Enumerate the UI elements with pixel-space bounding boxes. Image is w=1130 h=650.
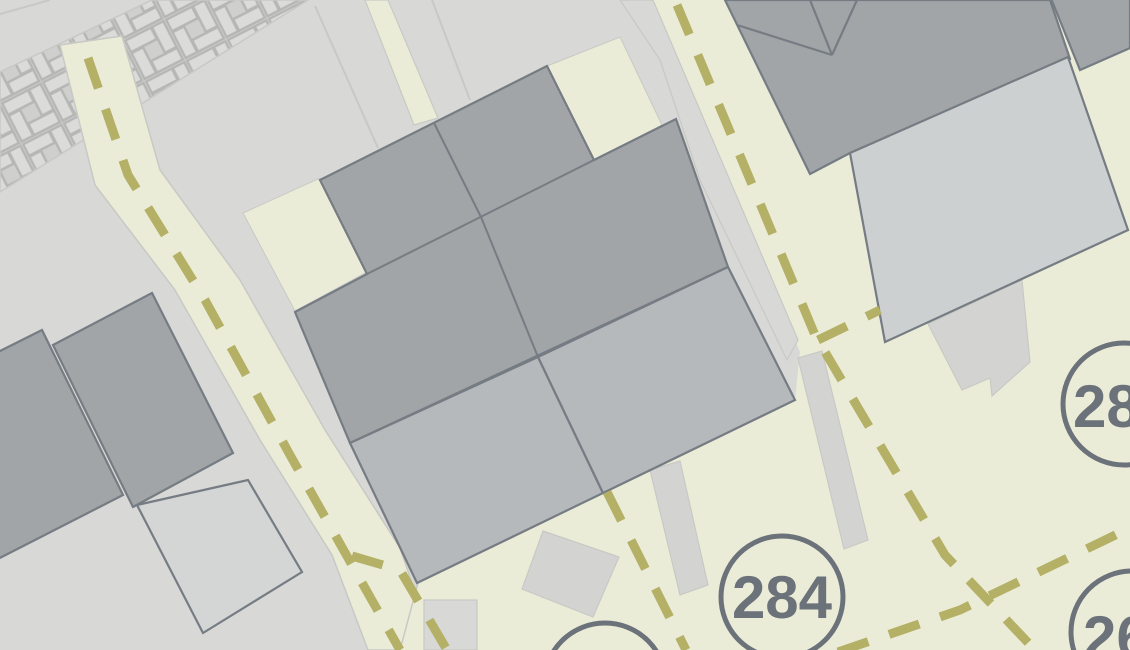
map-canvas[interactable]: 2842826: [0, 0, 1130, 650]
map-viewport[interactable]: 2842826: [0, 0, 1130, 650]
parcel-label-284-text: 284: [732, 564, 833, 631]
parcel-label-26-text: 26: [1083, 604, 1130, 650]
parcel-label-28-text: 28: [1073, 373, 1130, 440]
